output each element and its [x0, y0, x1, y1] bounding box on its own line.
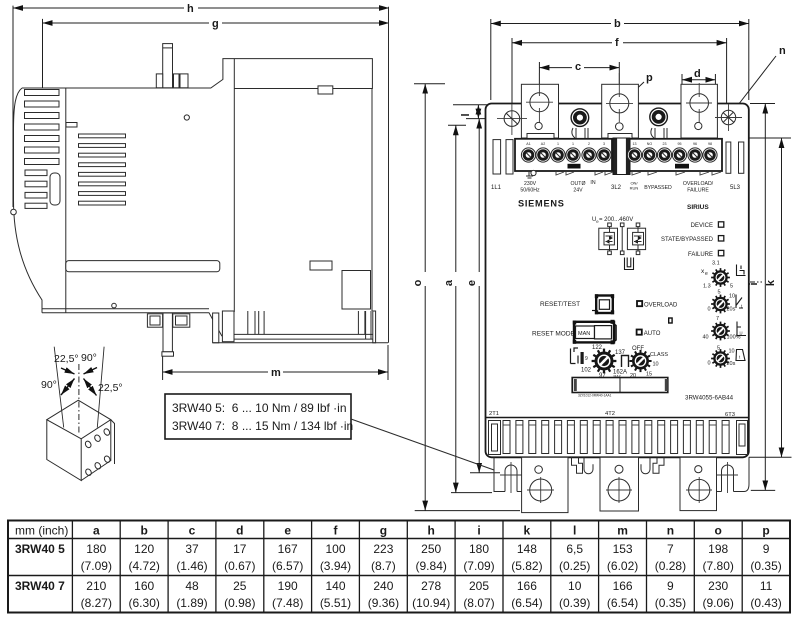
svg-text:(7.09): (7.09) [463, 559, 494, 573]
svg-text:d: d [236, 524, 243, 538]
svg-text:(0.35): (0.35) [750, 559, 781, 573]
svg-text:180: 180 [469, 542, 489, 556]
svg-text:RUN: RUN [630, 186, 639, 191]
svg-text:(0.39): (0.39) [559, 596, 590, 610]
svg-text:(0.25): (0.25) [559, 559, 590, 573]
svg-text:5: 5 [717, 346, 720, 352]
svg-text:p: p [762, 524, 769, 538]
svg-text:22,5°: 22,5° [98, 382, 123, 394]
svg-text:(9.36): (9.36) [368, 596, 399, 610]
svg-text:250: 250 [421, 542, 441, 556]
svg-text:IN: IN [590, 180, 595, 186]
svg-text:(0.35): (0.35) [655, 596, 686, 610]
svg-text:6,5: 6,5 [566, 542, 583, 556]
svg-text:1: 1 [572, 142, 574, 146]
svg-text:148: 148 [517, 542, 537, 556]
svg-text:(6.30): (6.30) [129, 596, 160, 610]
svg-text:(9.06): (9.06) [703, 596, 734, 610]
svg-text:(0.28): (0.28) [655, 559, 686, 573]
svg-text:l: l [460, 113, 472, 116]
svg-text:166: 166 [613, 579, 633, 593]
svg-text:2T1: 2T1 [489, 411, 499, 417]
svg-text:k: k [524, 524, 531, 538]
svg-text:BYPASSED: BYPASSED [644, 185, 672, 191]
svg-text:AUTO: AUTO [644, 331, 661, 337]
svg-text:p: p [646, 72, 653, 84]
svg-text:1.3: 1.3 [703, 284, 711, 290]
svg-text:160: 160 [134, 579, 154, 593]
svg-text:5: 5 [730, 284, 733, 290]
svg-text:= 200...460V: = 200...460V [599, 217, 633, 223]
svg-text:b: b [614, 18, 621, 30]
svg-text:OUTØ: OUTØ [571, 181, 586, 187]
svg-text:40: 40 [703, 335, 709, 341]
svg-text:OVERLOAD: OVERLOAD [644, 303, 678, 309]
svg-text:(7.48): (7.48) [272, 596, 303, 610]
svg-text:(1.89): (1.89) [176, 596, 207, 610]
svg-text:7: 7 [716, 316, 719, 322]
svg-text:RESET MODE: RESET MODE [532, 331, 576, 338]
svg-text:90°: 90° [81, 352, 97, 364]
svg-text:3ZX1012-0RW40-1AA1: 3ZX1012-0RW40-1AA1 [578, 394, 612, 398]
svg-text:(6.02): (6.02) [607, 559, 638, 573]
svg-text:10: 10 [568, 579, 582, 593]
svg-text:96: 96 [693, 142, 697, 146]
svg-text:10: 10 [729, 294, 735, 300]
svg-text:(7.80): (7.80) [703, 559, 734, 573]
svg-text:13: 13 [633, 142, 637, 146]
svg-text:48: 48 [185, 579, 199, 593]
svg-text:CLASS: CLASS [650, 352, 668, 358]
svg-text:a: a [93, 524, 100, 538]
svg-text:h: h [187, 3, 194, 15]
svg-text:100: 100 [325, 542, 345, 556]
svg-text:3RW40 7: 3RW40 7 [15, 579, 65, 593]
svg-text:(6.54): (6.54) [511, 596, 542, 610]
svg-text:140: 140 [325, 579, 345, 593]
svg-text:9: 9 [667, 579, 674, 593]
svg-text:230V: 230V [524, 181, 537, 187]
svg-text:230: 230 [708, 579, 728, 593]
svg-text:e: e [284, 524, 291, 538]
svg-text:3L2: 3L2 [611, 185, 622, 191]
svg-text:(0.67): (0.67) [224, 559, 255, 573]
svg-text:g: g [212, 18, 219, 30]
svg-text:OVERLOAD/: OVERLOAD/ [683, 181, 714, 187]
svg-text:1L1: 1L1 [491, 185, 502, 191]
svg-text:(8.07): (8.07) [463, 596, 494, 610]
svg-text:m: m [271, 367, 281, 379]
svg-text:102: 102 [581, 368, 592, 374]
svg-text:STATE/BYPASSED: STATE/BYPASSED [661, 237, 714, 243]
svg-text:(4.72): (4.72) [129, 559, 160, 573]
svg-text:a: a [443, 279, 455, 286]
svg-text:4T2: 4T2 [605, 411, 615, 417]
svg-text:FAILURE: FAILURE [687, 188, 709, 194]
svg-text:5: 5 [718, 290, 721, 296]
svg-text:9: 9 [763, 542, 770, 556]
svg-text:0: 0 [708, 361, 711, 367]
svg-text:1: 1 [557, 142, 559, 146]
svg-text:e: e [466, 280, 478, 286]
svg-text:FAILURE: FAILURE [688, 252, 713, 258]
svg-text:10: 10 [729, 349, 735, 355]
svg-text:10: 10 [653, 362, 659, 368]
svg-text:20s: 20s [727, 361, 736, 367]
svg-text:37: 37 [185, 542, 199, 556]
svg-text:(8.27): (8.27) [81, 596, 112, 610]
svg-text:DEVICE: DEVICE [691, 223, 713, 229]
svg-text:c: c [189, 524, 196, 538]
svg-text:24V: 24V [573, 188, 583, 194]
svg-text:240: 240 [373, 579, 393, 593]
svg-text:h: h [428, 524, 435, 538]
svg-text:3RW40 5: 3RW40 5 [15, 542, 65, 556]
svg-text:mm (inch): mm (inch) [15, 524, 68, 538]
svg-text:190: 190 [278, 579, 298, 593]
svg-text:90°: 90° [41, 379, 57, 391]
svg-text:(8.7): (8.7) [371, 559, 396, 573]
svg-text:MAN: MAN [578, 331, 590, 337]
svg-text:(1.46): (1.46) [176, 559, 207, 573]
svg-text:15: 15 [646, 372, 652, 378]
svg-text:(6.54): (6.54) [607, 596, 638, 610]
svg-text:20s: 20s [727, 307, 736, 313]
svg-text:m: m [617, 524, 628, 538]
svg-text:95: 95 [678, 142, 682, 146]
svg-text:(10.94): (10.94) [412, 596, 450, 610]
svg-text:120: 120 [134, 542, 154, 556]
svg-text:g: g [380, 524, 387, 538]
svg-text:o: o [715, 524, 722, 538]
svg-text:i: i [748, 282, 760, 285]
svg-text:d: d [694, 68, 701, 80]
svg-text:(3.94): (3.94) [320, 559, 351, 573]
svg-text:11: 11 [760, 579, 773, 593]
svg-text:3RW4055-6AB44: 3RW4055-6AB44 [685, 395, 734, 402]
svg-text:122: 122 [592, 345, 603, 351]
svg-text:98: 98 [708, 142, 712, 146]
svg-text:205: 205 [469, 579, 489, 593]
svg-text:OFF: OFF [632, 346, 644, 352]
svg-text:166: 166 [517, 579, 537, 593]
svg-text:223: 223 [373, 542, 393, 556]
svg-text:3RW40 7: 8 ... 15 Nm / 134 lb: 3RW40 7: 8 ... 15 Nm / 134 lbf ·in [172, 419, 353, 433]
svg-text:n: n [779, 45, 786, 57]
svg-text:210: 210 [86, 579, 106, 593]
svg-text:(9.84): (9.84) [416, 559, 447, 573]
svg-text:25: 25 [233, 579, 247, 593]
svg-text:e: e [705, 271, 708, 277]
svg-text:k: k [765, 279, 777, 286]
svg-text:3.1: 3.1 [712, 261, 720, 267]
svg-text:167: 167 [278, 542, 298, 556]
svg-text:0: 0 [708, 307, 711, 313]
svg-text:22,5°: 22,5° [54, 353, 79, 365]
svg-text:3: 3 [603, 142, 605, 146]
svg-text:153: 153 [613, 542, 633, 556]
svg-text:278: 278 [421, 579, 441, 593]
svg-text:(0.43): (0.43) [750, 596, 781, 610]
svg-text:(6.57): (6.57) [272, 559, 303, 573]
svg-text:i: i [477, 524, 480, 538]
svg-text:SIEMENS: SIEMENS [518, 198, 565, 208]
svg-text:f: f [615, 37, 619, 49]
svg-text:NO: NO [647, 142, 653, 146]
svg-text:A2: A2 [541, 142, 545, 146]
svg-text:5L3: 5L3 [730, 185, 741, 191]
svg-text:SIRIUS: SIRIUS [687, 204, 709, 211]
svg-text:(5.51): (5.51) [320, 596, 351, 610]
svg-text:3RW40 5: 6 ... 10 Nm / 89 lbf: 3RW40 5: 6 ... 10 Nm / 89 lbf ·in [172, 401, 347, 415]
svg-text:n: n [667, 524, 674, 538]
svg-text:50/60Hz: 50/60Hz [520, 188, 540, 194]
svg-text:A1: A1 [526, 142, 530, 146]
svg-text:(5.82): (5.82) [511, 559, 542, 573]
svg-text:7: 7 [667, 542, 674, 556]
svg-text:l: l [573, 524, 576, 538]
svg-text:23: 23 [663, 142, 667, 146]
svg-text:b: b [141, 524, 148, 538]
svg-text:9: 9 [585, 356, 588, 362]
svg-text:RESET/TEST: RESET/TEST [540, 301, 580, 308]
svg-text:(0.98): (0.98) [224, 596, 255, 610]
svg-text:c: c [575, 61, 581, 73]
svg-text:180: 180 [86, 542, 106, 556]
svg-text:198: 198 [708, 542, 728, 556]
svg-text:2: 2 [588, 142, 590, 146]
svg-text:U: U [740, 331, 743, 336]
svg-text:o: o [412, 279, 424, 286]
svg-text:17: 17 [233, 542, 247, 556]
svg-text:(7.09): (7.09) [81, 559, 112, 573]
